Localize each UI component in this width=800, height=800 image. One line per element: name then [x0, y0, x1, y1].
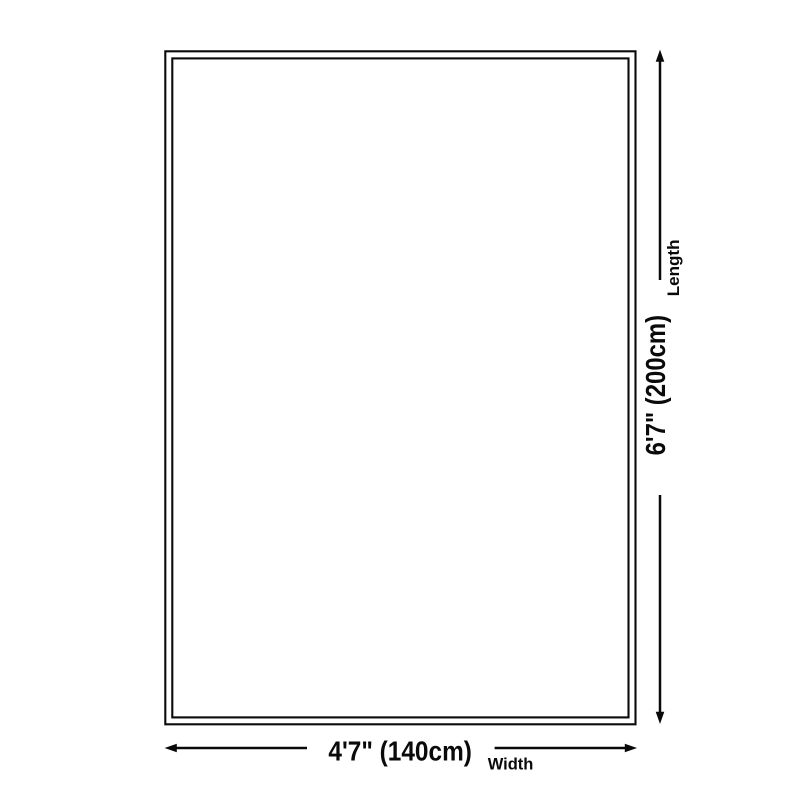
- svg-text:4'7" (140cm): 4'7" (140cm): [328, 735, 472, 766]
- svg-text:Length: Length: [664, 240, 683, 297]
- svg-text:Width: Width: [488, 755, 534, 773]
- svg-text:6'7" (200cm): 6'7" (200cm): [640, 315, 671, 456]
